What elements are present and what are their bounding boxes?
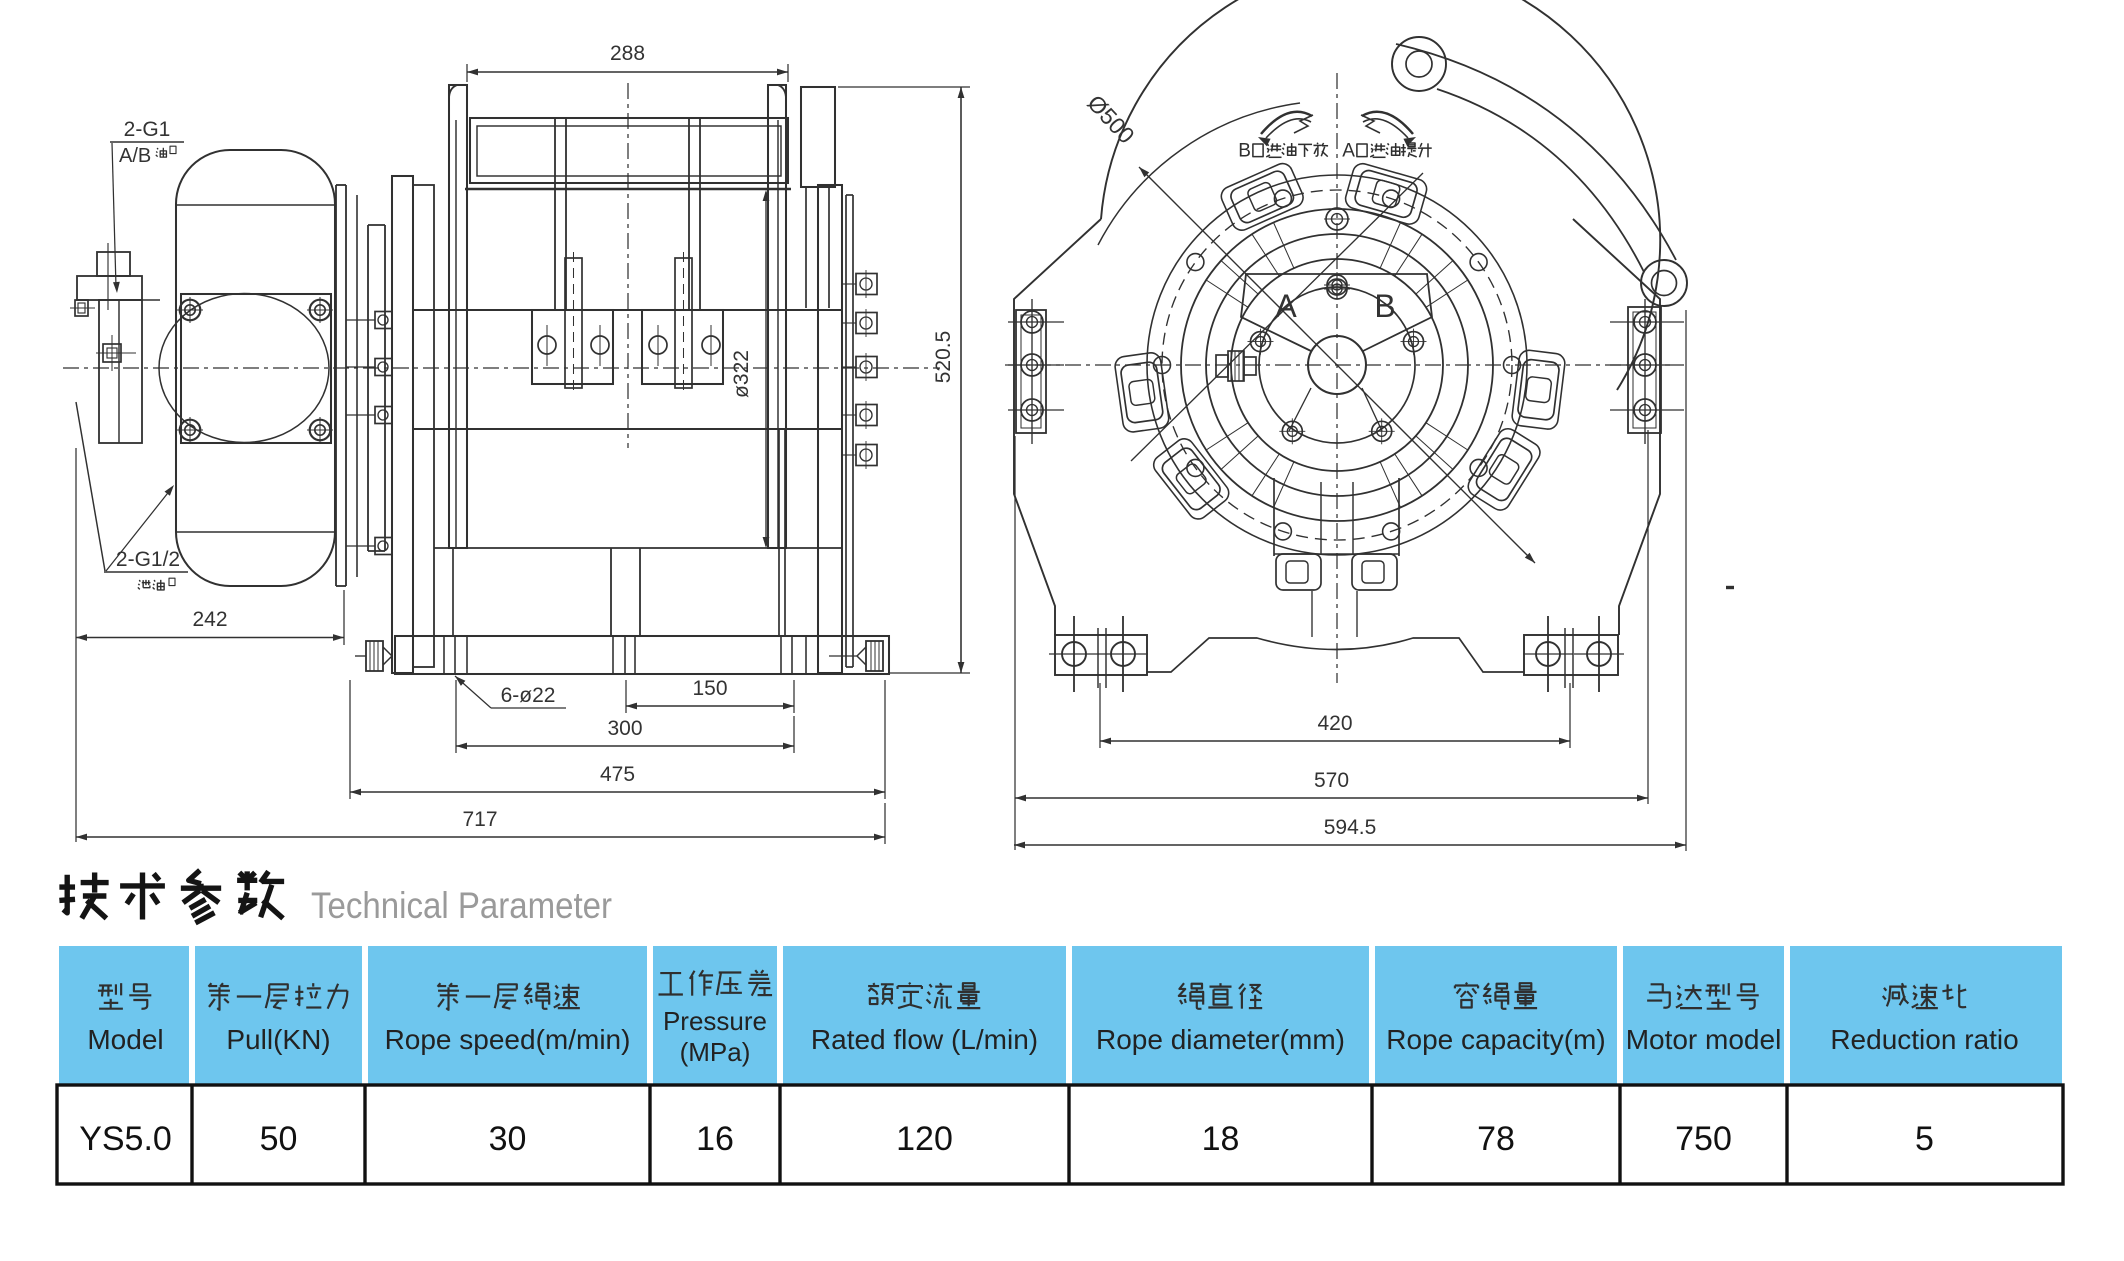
svg-text:300: 300	[607, 717, 642, 740]
svg-text:Motor model: Motor model	[1626, 1024, 1782, 1055]
svg-text:5: 5	[1915, 1120, 1934, 1158]
svg-text:520.5: 520.5	[932, 331, 955, 384]
svg-text:50: 50	[260, 1120, 298, 1158]
svg-text:YS5.0: YS5.0	[79, 1120, 172, 1158]
svg-text:150: 150	[692, 677, 727, 700]
svg-text:Technical Parameter: Technical Parameter	[311, 885, 612, 926]
svg-text:Rope speed(m/min): Rope speed(m/min)	[385, 1024, 631, 1055]
svg-text:2-G1/2: 2-G1/2	[116, 548, 180, 571]
svg-text:Rope capacity(m): Rope capacity(m)	[1386, 1024, 1605, 1055]
svg-text:Ø500: Ø500	[1082, 90, 1139, 149]
svg-text:A/B: A/B	[119, 145, 151, 167]
svg-text:18: 18	[1202, 1120, 1240, 1158]
svg-text:Rated flow (L/min): Rated flow (L/min)	[811, 1024, 1038, 1055]
svg-text:(MPa): (MPa)	[680, 1037, 751, 1067]
svg-text:Reduction ratio: Reduction ratio	[1830, 1024, 2018, 1055]
svg-text:ø322: ø322	[730, 350, 753, 398]
svg-text:120: 120	[896, 1120, 953, 1158]
svg-text:B: B	[1374, 288, 1395, 324]
svg-text:6-ø22: 6-ø22	[501, 684, 556, 707]
svg-text:594.5: 594.5	[1324, 816, 1377, 839]
svg-text:475: 475	[600, 763, 635, 786]
svg-text:420: 420	[1317, 712, 1352, 735]
svg-text:717: 717	[462, 808, 497, 831]
svg-text:Model: Model	[87, 1024, 163, 1055]
svg-text:A: A	[1342, 141, 1355, 162]
svg-text:B: B	[1238, 141, 1251, 162]
svg-text:288: 288	[610, 42, 645, 65]
svg-text:Pull(KN): Pull(KN)	[226, 1024, 330, 1055]
svg-text:78: 78	[1477, 1120, 1515, 1158]
svg-text:30: 30	[489, 1120, 527, 1158]
svg-text:Pressure: Pressure	[663, 1006, 767, 1036]
svg-text:2-G1: 2-G1	[124, 118, 171, 141]
svg-text:570: 570	[1314, 769, 1349, 792]
svg-text:242: 242	[192, 608, 227, 631]
svg-text:Rope diameter(mm): Rope diameter(mm)	[1096, 1024, 1345, 1055]
svg-text:750: 750	[1675, 1120, 1732, 1158]
svg-text:16: 16	[696, 1120, 734, 1158]
